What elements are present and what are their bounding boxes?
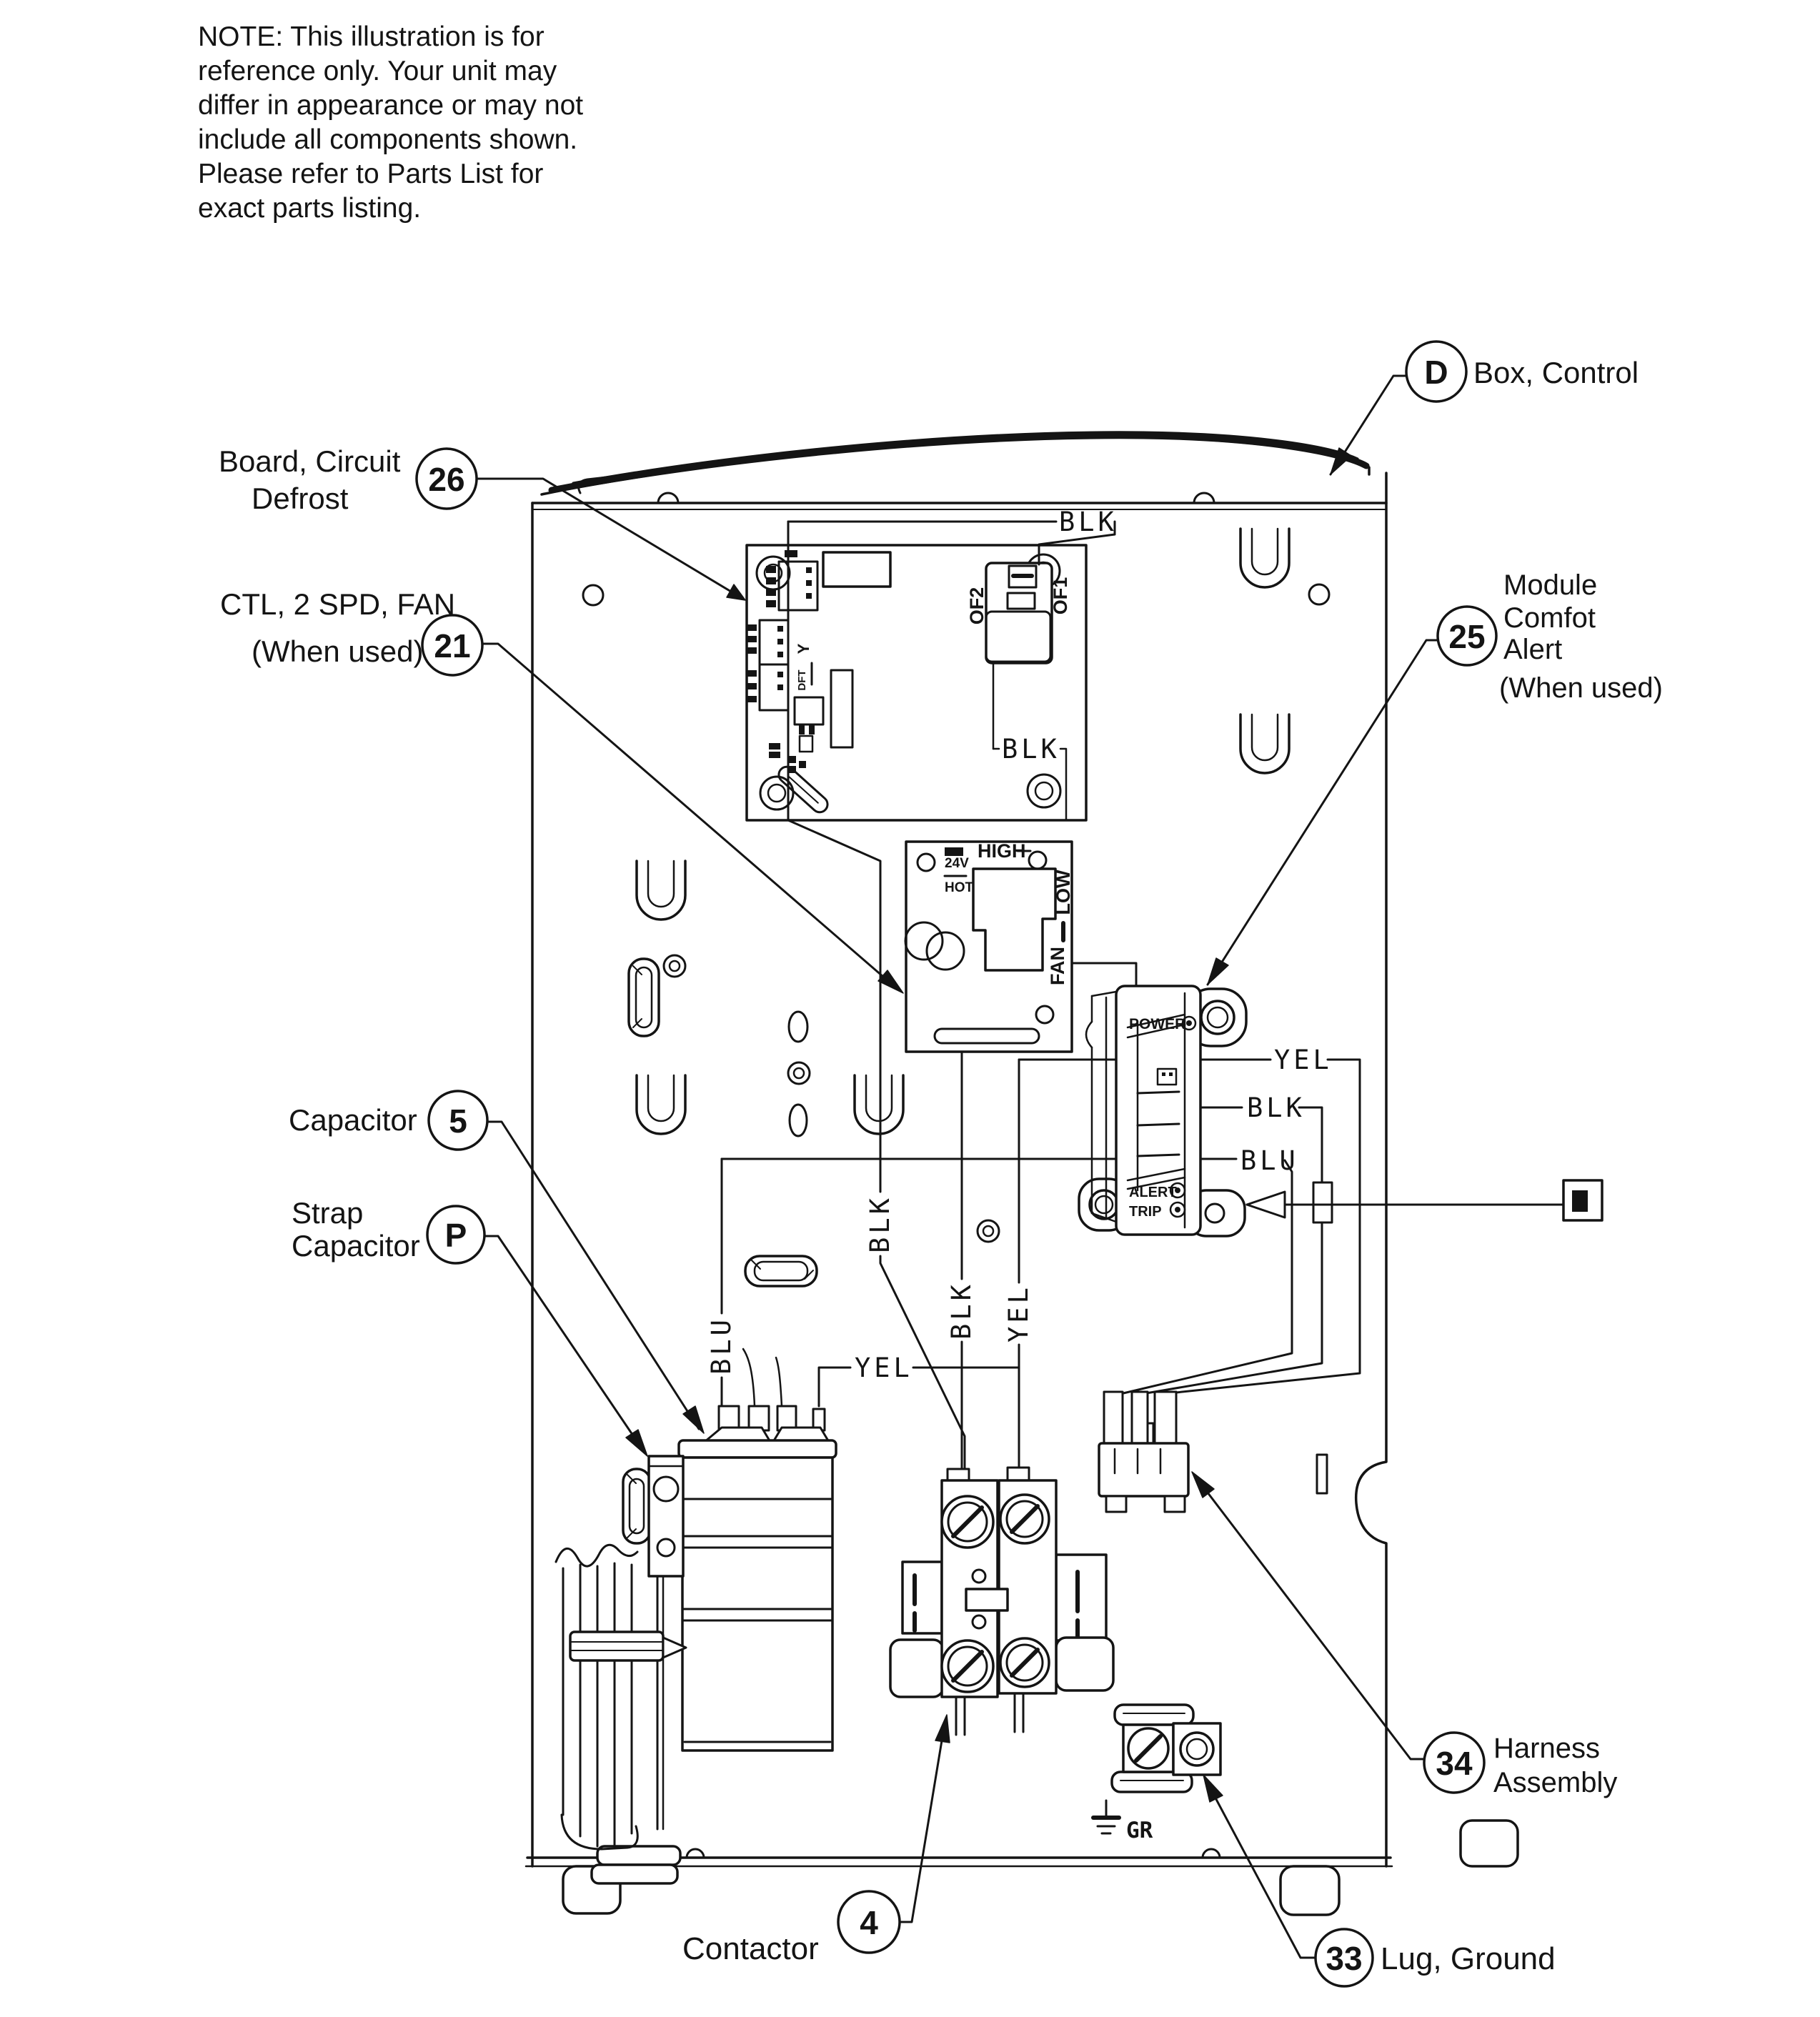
callout-label: Alert: [1503, 634, 1562, 665]
callout-ref: 34: [1436, 1745, 1473, 1782]
leader-arrow: [1203, 1775, 1223, 1802]
panel-slot: [790, 1105, 807, 1136]
mounting-foot: [1461, 1821, 1518, 1866]
callout-label: Harness: [1493, 1733, 1600, 1764]
wire-yel: [819, 1368, 850, 1406]
strap-plate: [649, 1456, 683, 1576]
callout-ref: 4: [860, 1904, 878, 1941]
capacitor-assembly: [679, 1349, 836, 1750]
note-line: NOTE: This illustration is for: [198, 21, 544, 52]
wire-label-blk-top: BLK: [1059, 507, 1118, 537]
callout-label: Contactor: [682, 1931, 819, 1966]
edge-screw: [1194, 493, 1214, 503]
contactor-wing: [902, 1562, 942, 1633]
edge-screw: [1203, 1849, 1220, 1858]
wire-label-yel-cap: YEL: [855, 1353, 913, 1383]
parts-diagram-page: NOTE: This illustration is for reference…: [0, 0, 1820, 2017]
wire-splice: [1313, 1182, 1332, 1222]
wire-label-blu-module: BLU: [1240, 1145, 1299, 1176]
ground-label: GR: [1126, 1818, 1153, 1843]
callout-harness: 34 Harness Assembly: [1192, 1472, 1617, 1798]
callout-label: (When used): [1499, 672, 1663, 704]
callout-lug-ground: 33 Lug, Ground: [1203, 1775, 1556, 1986]
wire-label-blk-vertical: BLK: [865, 1195, 895, 1253]
callout-ref: 21: [434, 627, 470, 664]
u-cutout: [855, 1075, 903, 1134]
leader-line: [900, 1723, 945, 1922]
board-label-fan: FAN: [1047, 947, 1068, 985]
callout-label: Capacitor: [292, 1229, 420, 1263]
leader-arrow: [626, 1430, 647, 1456]
callout-label: Box, Control: [1473, 356, 1639, 389]
module-label-alert: ALERT: [1129, 1185, 1177, 1200]
callout-label: Lug, Ground: [1381, 1941, 1556, 1976]
callout-box-control: D Box, Control: [1331, 342, 1639, 474]
callout-ref: 25: [1448, 618, 1485, 655]
leader-line: [477, 479, 742, 598]
callout-ref: 33: [1326, 1940, 1362, 1977]
u-cutout: [637, 1075, 685, 1134]
leader-arrow: [1192, 1472, 1214, 1498]
contactor-foot: [890, 1640, 943, 1697]
leader-arrow: [1208, 958, 1228, 985]
callout-label: Assembly: [1493, 1767, 1617, 1798]
callout-contactor: 4 Contactor: [682, 1715, 950, 1966]
note-line: exact parts listing.: [198, 193, 421, 224]
board-label-low: LOW: [1053, 870, 1074, 915]
callout-label: Module: [1503, 569, 1597, 601]
panel-slot: [745, 1256, 817, 1286]
mounting-foot: [1281, 1866, 1339, 1915]
u-cutout: [637, 861, 685, 920]
fan-control-board: 24V HOT HIGH LOW FAN: [905, 840, 1074, 1052]
contactor-coil-window: [966, 1589, 1008, 1610]
contactor-assembly: [890, 1468, 1113, 1735]
callout-ref: 26: [428, 461, 464, 498]
note-line: differ in appearance or may not: [198, 90, 583, 121]
panel-screw: [978, 1220, 999, 1242]
board-label-y: Y: [795, 643, 812, 654]
board-label-hot: HOT: [945, 880, 974, 895]
edge-screw: [687, 1849, 704, 1858]
wire-label-blu-vertical: BLU: [706, 1316, 737, 1375]
edge-screw: [658, 493, 678, 503]
callout-label: Comfot: [1503, 602, 1596, 634]
contactor-wing: [1056, 1555, 1106, 1640]
callout-label: Capacitor: [289, 1103, 417, 1137]
callout-comfort-alert: 25 Module Comfot Alert (When used): [1208, 569, 1663, 985]
harness-plug: [1099, 1392, 1188, 1512]
parts-diagram: NOTE: This illustration is for reference…: [0, 0, 1820, 2017]
callout-ref: 5: [449, 1102, 467, 1140]
panel-screw: [664, 955, 685, 977]
leader-line: [1196, 1478, 1424, 1759]
comfort-alert-module: POWER ALERT TRIP: [1079, 986, 1246, 1236]
edge-slot: [1317, 1455, 1327, 1493]
panel-slot: [789, 1012, 807, 1042]
panel-hole: [583, 585, 603, 605]
defrost-circuit-board: Y DFT OF2 OF1: [747, 545, 1086, 820]
callout-ref: D: [1424, 354, 1448, 391]
leader-arrow: [727, 584, 745, 600]
contactor-foot: [1056, 1638, 1113, 1690]
note-line: include all components shown.: [198, 124, 577, 155]
leader-line: [1208, 640, 1438, 985]
note-line: Please refer to Parts List for: [198, 159, 543, 189]
wire-label-yel-vertical: YEL: [1003, 1284, 1034, 1343]
note-block: NOTE: This illustration is for reference…: [198, 21, 583, 224]
callout-label: Board, Circuit: [219, 444, 401, 478]
panel-slot: [629, 959, 659, 1036]
module-label-power: POWER: [1129, 1016, 1185, 1032]
wire-label-blk-module: BLK: [1247, 1092, 1306, 1123]
harness-arrow: [1247, 1192, 1285, 1217]
relay-label-of1: OF1: [1050, 577, 1071, 615]
callout-ref: P: [445, 1217, 467, 1254]
panel-screw: [788, 1062, 810, 1084]
leader-line: [487, 1122, 699, 1429]
wire-label-blk-board: BLK: [1002, 734, 1060, 765]
note-line: reference only. Your unit may: [198, 56, 557, 86]
callout-strap: P Strap Capacitor: [292, 1196, 647, 1456]
fan-wire-bundle: [556, 1545, 686, 1849]
latch-plate: [592, 1865, 677, 1883]
capacitor-rim: [679, 1440, 836, 1458]
wire-tie: [570, 1632, 663, 1660]
board-label-dft: DFT: [796, 669, 808, 690]
callout-label: Defrost: [252, 482, 349, 515]
callout-label: (When used): [252, 634, 423, 668]
ground-symbol: GR: [1093, 1801, 1153, 1843]
leader-arrow: [935, 1715, 950, 1743]
leader-arrow: [878, 970, 903, 993]
module-label-trip: TRIP: [1129, 1204, 1162, 1220]
wire-label-yel-module: YEL: [1274, 1045, 1333, 1075]
strap-keyhole: [623, 1469, 650, 1543]
u-cutout: [1240, 714, 1289, 773]
panel-hole: [1309, 584, 1329, 604]
capacitor-body: [682, 1458, 832, 1750]
board-label-24v: 24V: [945, 856, 969, 871]
u-cutout: [1240, 529, 1289, 587]
callout-label: Strap: [292, 1196, 363, 1230]
wire-label-blk-vertical: BLK: [946, 1281, 977, 1340]
callout-label: CTL, 2 SPD, FAN: [220, 587, 455, 621]
leader-line: [484, 1236, 643, 1450]
relay-label-of2: OF2: [966, 587, 988, 625]
